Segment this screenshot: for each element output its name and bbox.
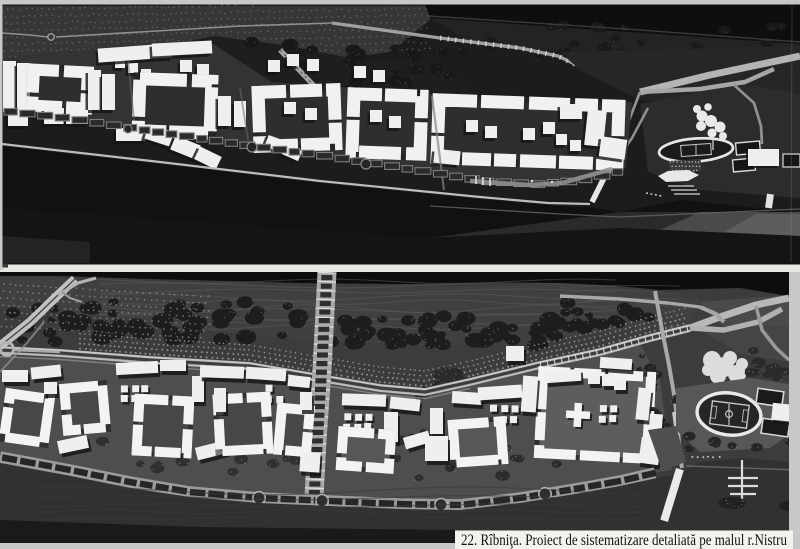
svg-text:22. Rîbniţa. Proiect de sistem: 22. Rîbniţa. Proiect de sistematizare de… (461, 532, 787, 549)
